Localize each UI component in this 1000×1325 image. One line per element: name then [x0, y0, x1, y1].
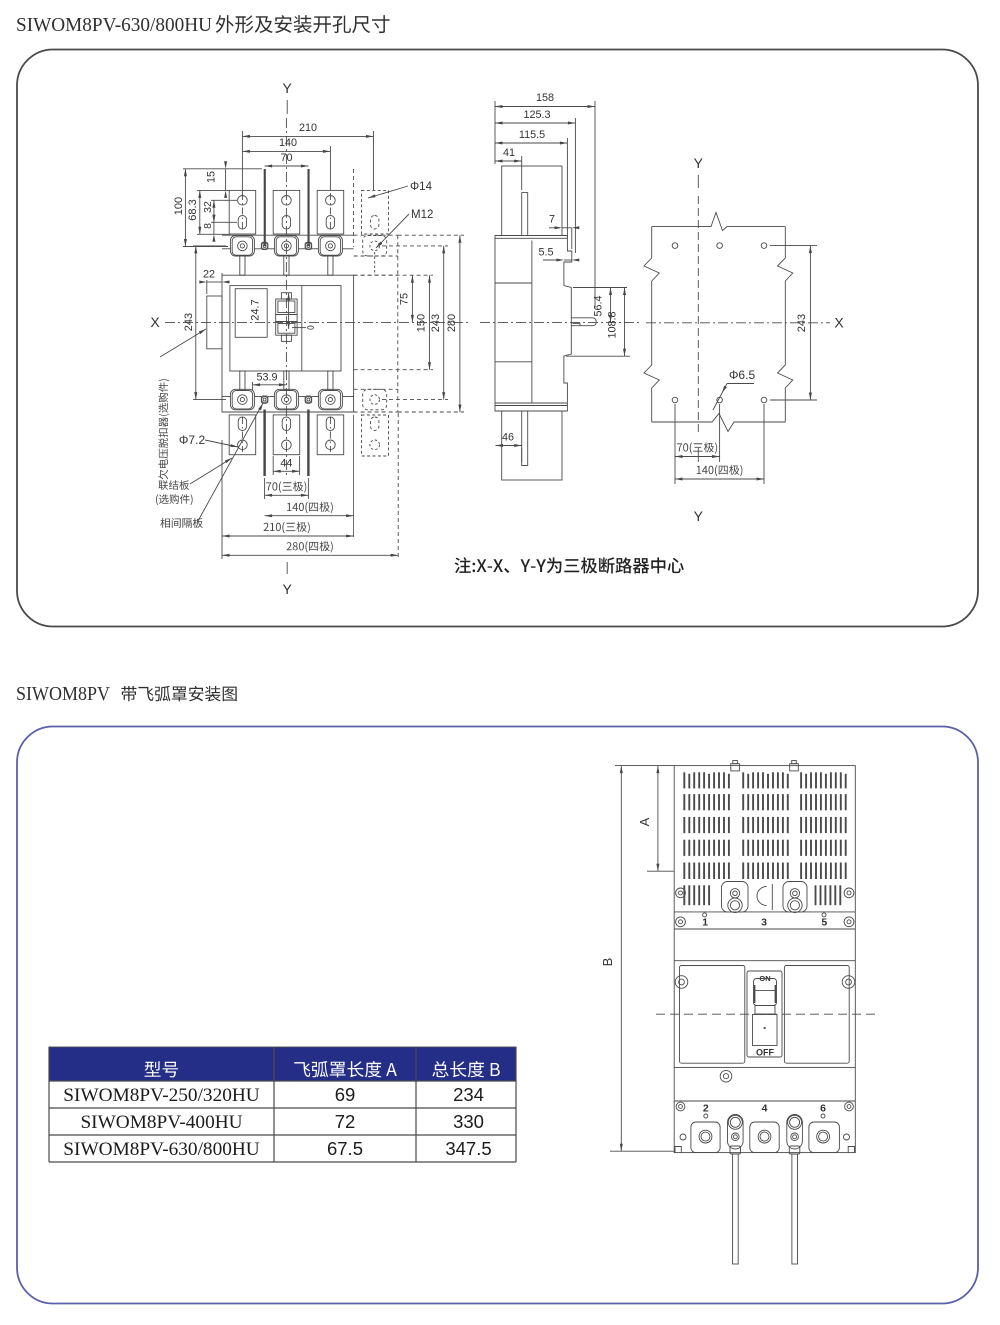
svg-text:210: 210 [299, 122, 317, 134]
svg-text:Y: Y [283, 581, 293, 597]
svg-text:41: 41 [503, 147, 515, 159]
svg-text:125.3: 125.3 [523, 109, 550, 121]
svg-text:SIWOM8PV-630/800HU: SIWOM8PV-630/800HU [63, 1139, 259, 1160]
svg-text:Y: Y [283, 80, 293, 96]
svg-text:1: 1 [702, 917, 708, 929]
svg-text:46: 46 [502, 432, 514, 444]
svg-text:Y: Y [694, 508, 704, 524]
svg-text:SIWOM8PV-630/800HU: SIWOM8PV-630/800HU [16, 14, 212, 36]
svg-text:Φ6.5: Φ6.5 [729, 368, 756, 382]
svg-text:7: 7 [549, 214, 555, 226]
svg-text:158: 158 [536, 92, 554, 104]
svg-text:32: 32 [202, 201, 214, 213]
svg-text:5: 5 [821, 917, 827, 929]
svg-text:150: 150 [416, 314, 428, 332]
svg-text:72: 72 [335, 1111, 356, 1132]
svg-text:24.7: 24.7 [250, 299, 262, 320]
svg-text:6: 6 [820, 1103, 826, 1115]
svg-text:5.5: 5.5 [538, 247, 553, 259]
svg-text:2: 2 [703, 1103, 709, 1115]
svg-text:3: 3 [761, 917, 767, 929]
svg-text:69: 69 [335, 1084, 356, 1105]
svg-text:X: X [150, 314, 160, 330]
svg-text:15: 15 [206, 171, 218, 183]
svg-text:X: X [834, 315, 844, 331]
svg-text:8: 8 [202, 223, 214, 229]
svg-text:243: 243 [183, 313, 195, 331]
svg-text:Y: Y [694, 155, 704, 171]
svg-text:SIWOM8PV-250/320HU: SIWOM8PV-250/320HU [63, 1085, 259, 1106]
svg-text:100: 100 [173, 197, 185, 215]
svg-text:115.5: 115.5 [519, 129, 545, 141]
svg-text:M12: M12 [411, 209, 433, 221]
svg-text:Φ7.2: Φ7.2 [179, 433, 206, 447]
svg-text:140: 140 [279, 137, 297, 149]
svg-text:56.4: 56.4 [593, 295, 605, 316]
svg-text:108.8: 108.8 [607, 311, 619, 338]
svg-text:Φ14: Φ14 [410, 181, 433, 193]
svg-text:OFF: OFF [756, 1048, 774, 1058]
svg-text:67.5: 67.5 [327, 1138, 363, 1159]
svg-text:A: A [637, 817, 652, 826]
svg-text:234: 234 [453, 1084, 484, 1105]
svg-text:B: B [600, 958, 615, 967]
svg-text:280: 280 [446, 314, 458, 332]
svg-text:SIWOM8PV: SIWOM8PV [16, 684, 110, 705]
svg-text:70: 70 [280, 152, 292, 164]
svg-text:53.9: 53.9 [256, 372, 277, 384]
svg-text:44: 44 [280, 458, 292, 470]
svg-text:330: 330 [453, 1111, 484, 1132]
svg-text:68.3: 68.3 [187, 199, 199, 220]
svg-text:4: 4 [762, 1103, 768, 1115]
svg-text:22: 22 [203, 269, 215, 281]
svg-text:243: 243 [430, 314, 442, 332]
svg-text:SIWOM8PV-400HU: SIWOM8PV-400HU [80, 1112, 242, 1133]
svg-text:347.5: 347.5 [445, 1138, 491, 1159]
svg-text:75: 75 [399, 293, 411, 305]
svg-text:243: 243 [796, 314, 808, 332]
